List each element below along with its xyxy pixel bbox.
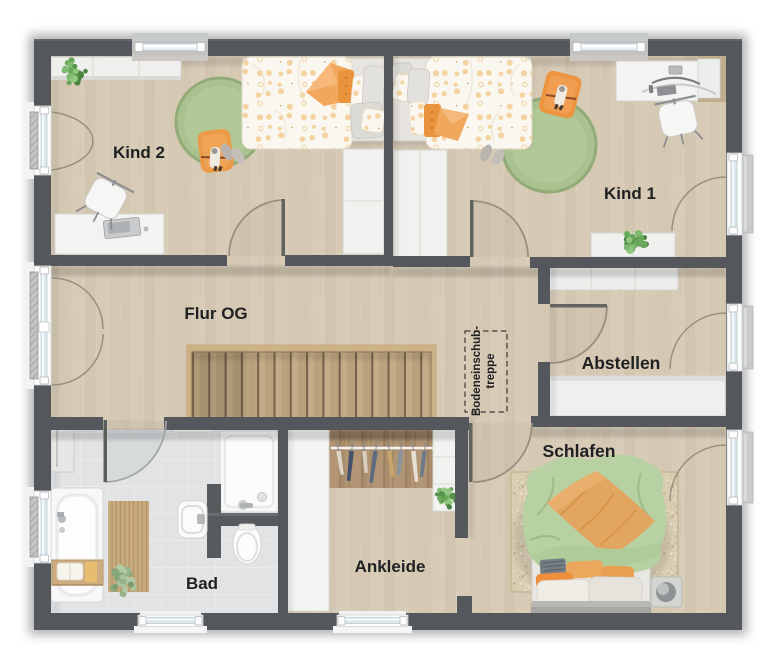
svg-text:Schlafen: Schlafen [543,441,616,461]
svg-text:Abstellen: Abstellen [582,353,661,373]
svg-text:Kind 1: Kind 1 [604,184,656,203]
svg-text:Flur OG: Flur OG [184,304,247,323]
svg-text:treppe: treppe [485,353,497,388]
svg-text:Kind 2: Kind 2 [113,143,165,162]
svg-text:Bad: Bad [186,574,218,593]
svg-text:Bodeneinschub-: Bodeneinschub- [471,326,483,416]
svg-text:Ankleide: Ankleide [355,557,426,576]
